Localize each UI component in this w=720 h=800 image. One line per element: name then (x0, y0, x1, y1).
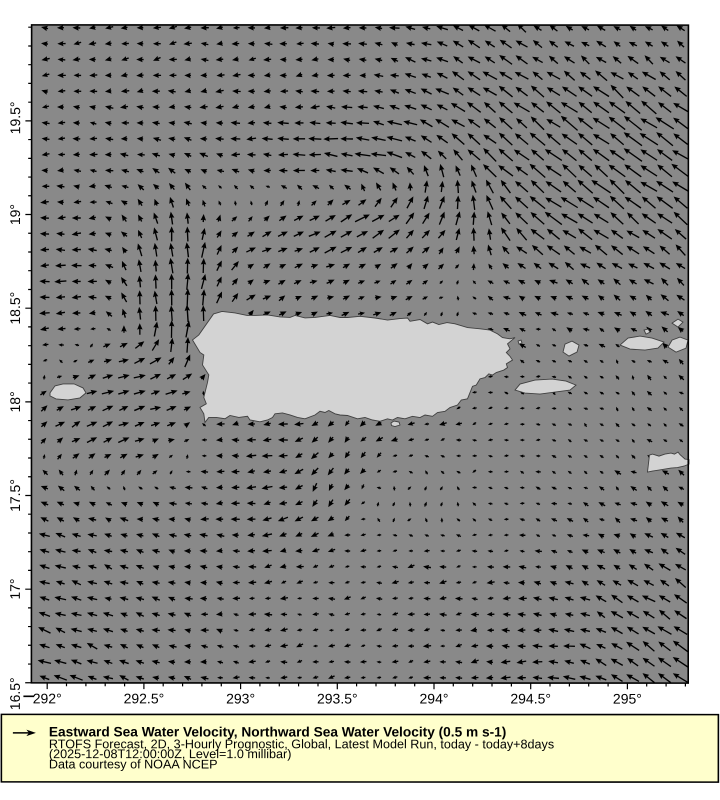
svg-text:16.5°: 16.5° (7, 677, 23, 710)
svg-text:293.5°: 293.5° (317, 690, 358, 706)
svg-text:294.5°: 294.5° (510, 691, 551, 707)
svg-text:17.5°: 17.5° (7, 479, 23, 512)
svg-text:18.5°: 18.5° (7, 292, 23, 325)
svg-text:19.5°: 19.5° (7, 101, 23, 134)
svg-text:293°: 293° (226, 690, 255, 706)
svg-text:294°: 294° (420, 691, 449, 707)
svg-text:Data courtesy of NOAA NCEP: Data courtesy of NOAA NCEP (49, 757, 218, 771)
svg-text:292°: 292° (33, 690, 62, 706)
svg-text:292.5°: 292.5° (124, 690, 165, 706)
svg-text:18°: 18° (7, 391, 23, 412)
svg-text:19°: 19° (7, 204, 23, 225)
svg-text:17°: 17° (7, 578, 23, 599)
svg-text:295°: 295° (613, 691, 642, 707)
